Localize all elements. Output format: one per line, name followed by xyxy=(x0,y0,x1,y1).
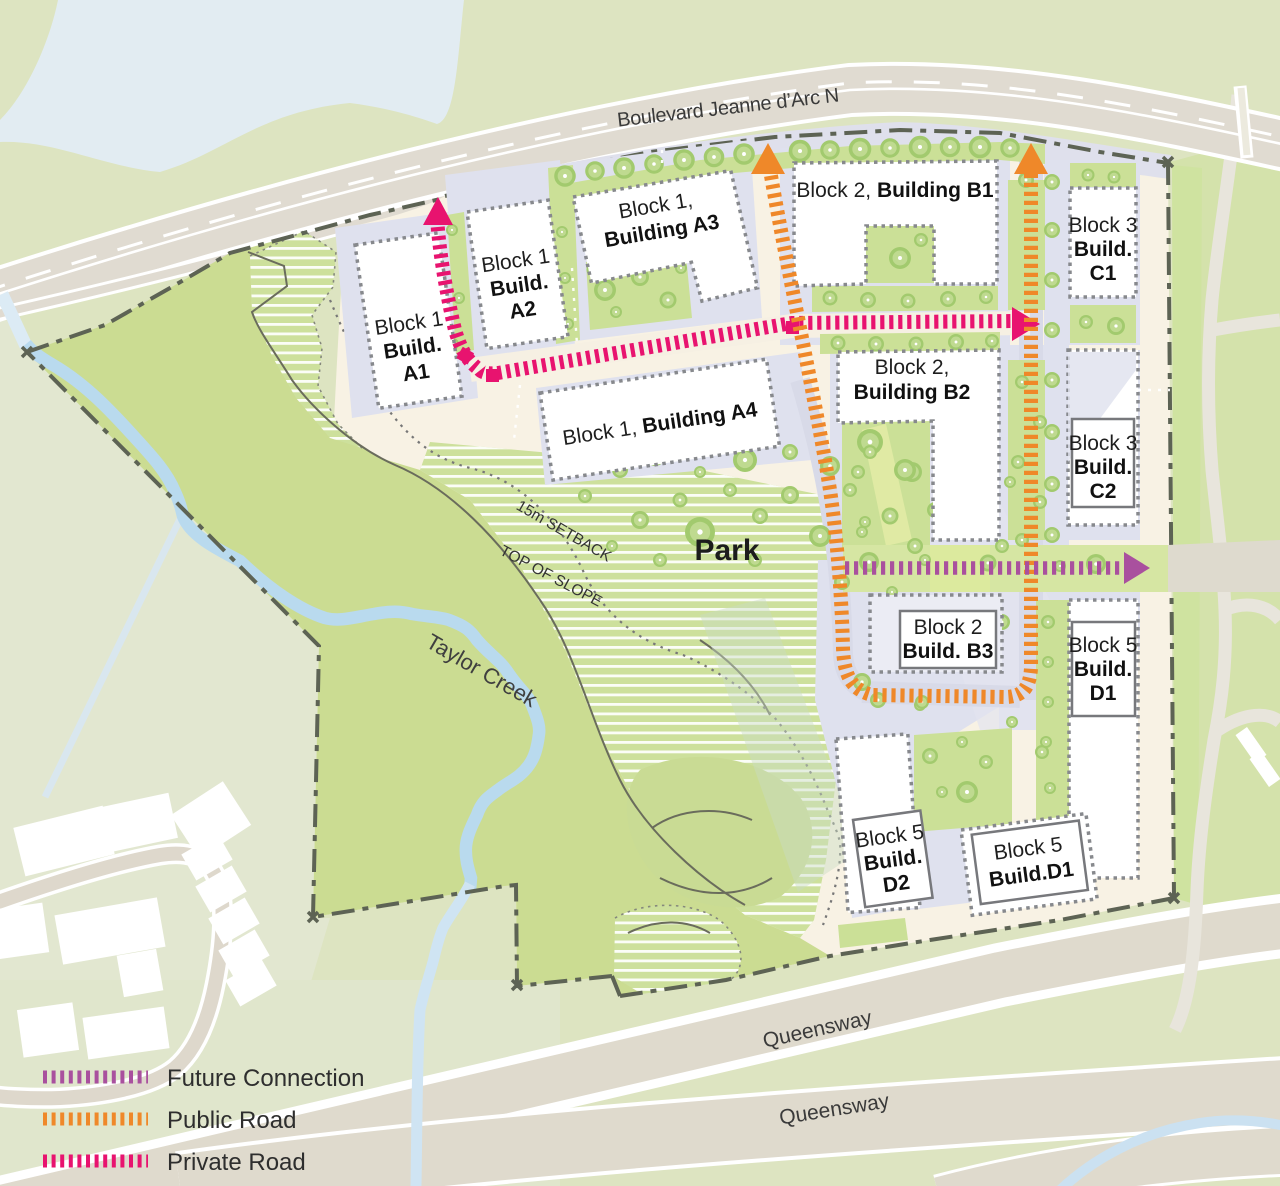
svg-text:D2: D2 xyxy=(881,871,911,898)
svg-text:Future Connection: Future Connection xyxy=(167,1065,364,1092)
svg-text:Block 5: Block 5 xyxy=(1069,634,1138,657)
svg-text:Build.: Build. xyxy=(1074,238,1132,261)
svg-text:Block 2,: Block 2, xyxy=(875,356,950,379)
svg-text:Build.: Build. xyxy=(1074,456,1132,479)
svg-text:A1: A1 xyxy=(401,360,431,387)
svg-text:Public Road: Public Road xyxy=(167,1107,296,1134)
svg-text:D1: D1 xyxy=(1090,682,1117,705)
svg-text:Block 2, Building B1: Block 2, Building B1 xyxy=(796,179,994,202)
svg-text:A2: A2 xyxy=(508,297,538,324)
svg-text:C1: C1 xyxy=(1090,262,1117,285)
svg-text:Build.: Build. xyxy=(1074,658,1132,681)
svg-text:C2: C2 xyxy=(1090,480,1117,503)
svg-text:Block 3: Block 3 xyxy=(1069,214,1138,237)
svg-text:Block 3: Block 3 xyxy=(1069,432,1138,455)
svg-text:Private Road: Private Road xyxy=(167,1149,306,1176)
svg-text:Build. B3: Build. B3 xyxy=(902,640,993,663)
svg-text:Block 2: Block 2 xyxy=(914,616,983,639)
svg-text:Park: Park xyxy=(694,534,759,567)
svg-text:Building B2: Building B2 xyxy=(854,381,971,404)
